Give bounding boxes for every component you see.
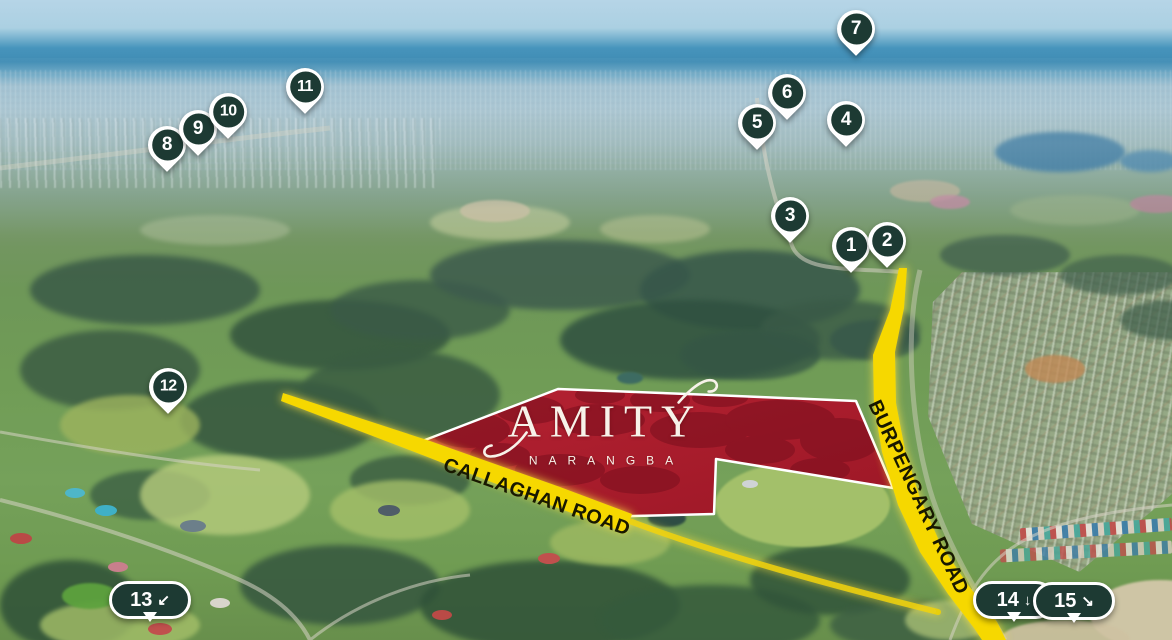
pin-body: 11 (278, 60, 332, 114)
bubble-number: 13 (130, 589, 152, 612)
direction-arrow-icon: ↓ (1024, 593, 1032, 608)
pin-number: 1 (846, 235, 857, 257)
map-marker-1[interactable]: 1 (832, 227, 870, 265)
pin-body: 3 (763, 189, 817, 243)
bubble-number: 15 (1054, 590, 1076, 613)
map-marker-13[interactable]: 13 ↙ (109, 581, 191, 619)
site-suburb: NARANGBA (510, 454, 704, 468)
pin-number: 2 (882, 230, 893, 252)
pin-body: 2 (860, 214, 914, 268)
site-name: AMITY (508, 399, 704, 445)
pin-body: 4 (819, 93, 873, 147)
map-marker-3[interactable]: 3 (771, 197, 809, 235)
map-marker-6[interactable]: 6 (768, 74, 806, 112)
map-marker-15[interactable]: 15 ↘ (1033, 582, 1115, 620)
pin-number: 12 (160, 378, 177, 396)
callaghan-road-continuation (632, 522, 938, 612)
pin-number: 9 (193, 118, 204, 140)
pin-number: 10 (220, 103, 237, 121)
pin-number: 3 (785, 205, 796, 227)
direction-arrow-icon: ↙ (157, 593, 170, 608)
map-marker-4[interactable]: 4 (827, 101, 865, 139)
bubble-number: 14 (997, 589, 1019, 612)
map-marker-11[interactable]: 11 (286, 68, 324, 106)
map-marker-12[interactable]: 12 (149, 368, 187, 406)
aerial-map: CALLAGHAN ROAD BURPENGARY ROAD AMITY NAR… (0, 0, 1172, 640)
pin-body: 10 (201, 85, 255, 139)
map-marker-7[interactable]: 7 (837, 10, 875, 48)
pin-number: 8 (162, 134, 173, 156)
pin-number: 4 (841, 109, 852, 131)
map-overlay-graphics: CALLAGHAN ROAD BURPENGARY ROAD (0, 0, 1172, 640)
pin-number: 5 (752, 112, 763, 134)
map-marker-2[interactable]: 2 (868, 222, 906, 260)
pin-body: 6 (760, 66, 814, 120)
site-logo: AMITY NARANGBA (499, 399, 704, 468)
direction-arrow-icon: ↘ (1081, 594, 1094, 609)
pin-body: 7 (829, 2, 883, 56)
pin-number: 11 (297, 78, 313, 96)
pin-number: 7 (851, 18, 862, 40)
map-marker-10[interactable]: 10 (209, 93, 247, 131)
pin-body: 12 (141, 360, 195, 414)
pin-number: 6 (782, 82, 793, 104)
